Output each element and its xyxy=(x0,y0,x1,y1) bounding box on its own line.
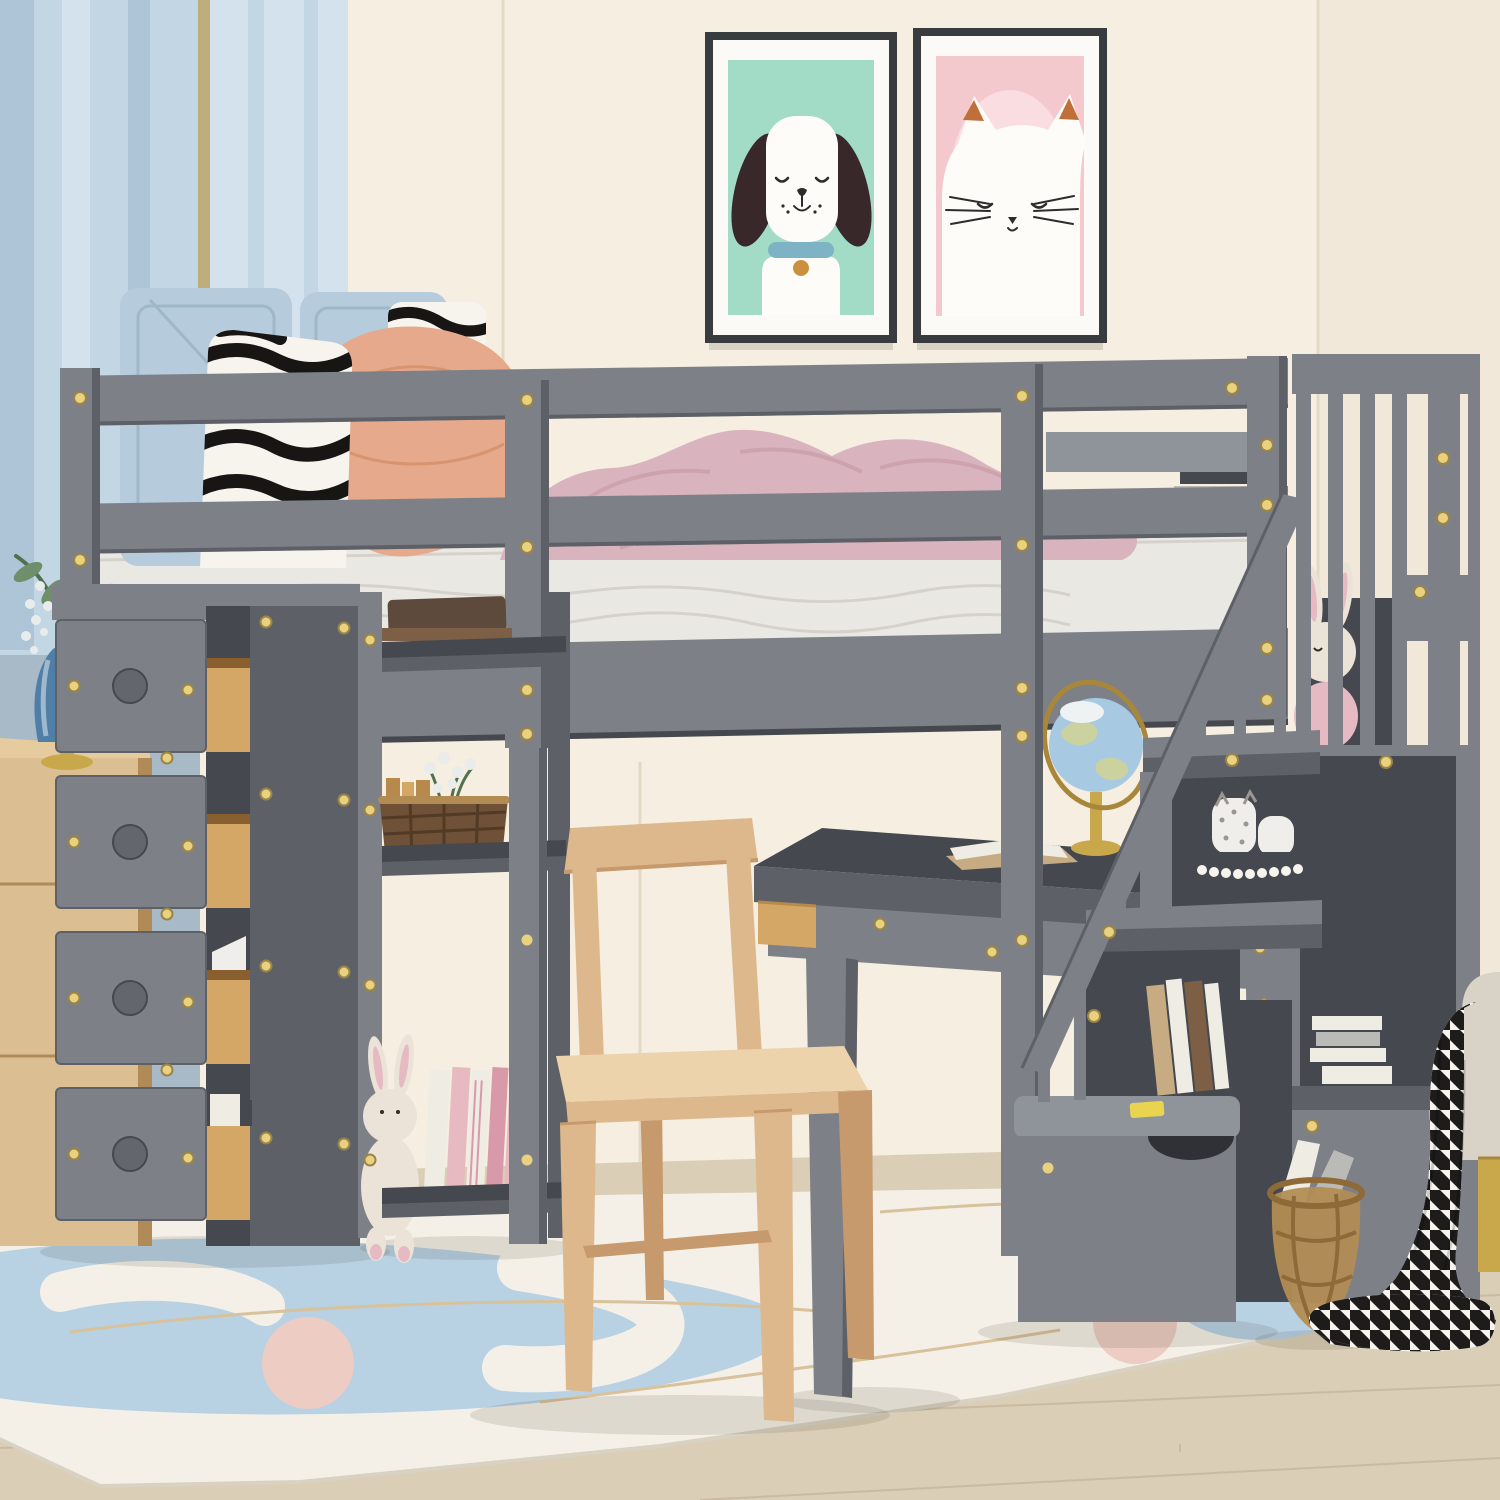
post-shade xyxy=(541,380,549,748)
drawer-box-wood xyxy=(206,658,250,752)
drawer-knob xyxy=(113,825,147,859)
bunny-eye xyxy=(380,1110,384,1114)
screw xyxy=(1226,754,1238,766)
book xyxy=(1180,472,1250,484)
screw xyxy=(522,935,533,946)
screw xyxy=(1261,694,1273,706)
bunny-head xyxy=(363,1089,417,1143)
yellow-tag xyxy=(1130,1101,1165,1118)
screw xyxy=(1016,539,1028,551)
drawer-knob xyxy=(113,1137,147,1171)
book xyxy=(1316,1032,1380,1046)
slat xyxy=(1328,394,1343,746)
screw xyxy=(365,635,376,646)
screw xyxy=(69,837,80,848)
stair-storage-drawer xyxy=(1014,1096,1240,1322)
basket-rim xyxy=(378,796,510,804)
screw xyxy=(1306,1120,1318,1132)
storage-step-cushion xyxy=(1014,1096,1240,1138)
drawer-contents-book xyxy=(240,1100,252,1126)
screw xyxy=(183,841,194,852)
slat xyxy=(1392,394,1407,746)
screw xyxy=(183,1153,194,1164)
poster-dog xyxy=(705,32,897,350)
drawer-box-interior xyxy=(206,658,250,668)
bunny-body xyxy=(361,1136,419,1236)
screw xyxy=(365,980,376,991)
slat-wide xyxy=(1428,394,1460,746)
screw xyxy=(875,919,886,930)
screw xyxy=(261,961,272,972)
globe-polar-cap xyxy=(1060,701,1104,723)
screw xyxy=(521,684,533,696)
shadow xyxy=(780,1387,960,1413)
stair-cubby-books xyxy=(1310,1016,1392,1084)
cat-figurine-spotted xyxy=(1212,798,1256,854)
screw xyxy=(1437,512,1449,524)
desk-drawer-open-wood xyxy=(758,902,816,948)
drawer-box-interior xyxy=(206,970,250,980)
screw xyxy=(1261,499,1273,511)
dog-collar-tag xyxy=(793,260,809,276)
screw xyxy=(987,947,998,958)
screw xyxy=(183,685,194,696)
bunny-foot-pad xyxy=(370,1244,382,1260)
ottoman-gold-leg xyxy=(1478,1158,1500,1272)
screw xyxy=(183,997,194,1008)
screw xyxy=(1103,926,1115,938)
screw xyxy=(162,1065,173,1076)
drawer-knob xyxy=(113,669,147,703)
screw xyxy=(69,993,80,1004)
drawer-box-wood xyxy=(206,1126,250,1220)
kids-room-loft-bed-photo xyxy=(0,0,1500,1500)
screw xyxy=(365,805,376,816)
screw xyxy=(162,909,173,920)
screw xyxy=(1261,642,1273,654)
drawer-box-wood xyxy=(206,814,250,908)
slat xyxy=(1296,394,1311,746)
drawer-contents-box xyxy=(210,1094,240,1126)
rug-pink-dot xyxy=(262,1317,354,1409)
screw xyxy=(69,681,80,692)
screw xyxy=(162,753,173,764)
bed-post-middle xyxy=(509,748,547,1244)
screw xyxy=(261,789,272,800)
screw xyxy=(261,1133,272,1144)
scene-canvas xyxy=(0,0,1500,1500)
screw xyxy=(261,617,272,628)
book xyxy=(1310,1048,1386,1062)
drawer-box-wood xyxy=(206,970,250,1064)
bunny-eye xyxy=(396,1110,400,1114)
globe-stem xyxy=(1090,792,1102,846)
cat-body xyxy=(942,94,1086,316)
screw xyxy=(339,623,350,634)
screw xyxy=(522,1155,533,1166)
drawer-box-interior xyxy=(206,814,250,824)
ottoman-body xyxy=(1462,972,1500,1160)
bed-back-rail xyxy=(1046,432,1268,472)
stair-panel-plate xyxy=(1400,575,1480,641)
screw xyxy=(74,392,86,404)
screw xyxy=(1016,934,1028,946)
drawer-knob xyxy=(113,981,147,1015)
bunny-foot-pad xyxy=(398,1246,410,1262)
poster-cat xyxy=(913,28,1107,350)
screw xyxy=(1414,586,1426,598)
screw xyxy=(339,795,350,806)
curtain-fold xyxy=(0,0,34,650)
screw xyxy=(1043,1163,1054,1174)
slat xyxy=(1468,394,1480,746)
screw xyxy=(1380,756,1392,768)
screw xyxy=(339,1139,350,1150)
screw xyxy=(365,1155,376,1166)
screw xyxy=(1016,682,1028,694)
poster-shadow xyxy=(709,343,893,350)
screw xyxy=(1226,382,1238,394)
dog-collar xyxy=(768,242,834,258)
post-shade xyxy=(539,748,547,1244)
book xyxy=(1312,1016,1382,1030)
shelf-black-book xyxy=(1196,852,1308,868)
screw xyxy=(339,967,350,978)
cat-figurine-small xyxy=(1258,816,1294,856)
slat xyxy=(1360,394,1375,746)
screw xyxy=(521,541,533,553)
stair-panel-top-cap xyxy=(1292,354,1480,394)
stair-lower-books xyxy=(1146,975,1230,1096)
screw xyxy=(521,394,533,406)
screw xyxy=(1437,452,1449,464)
screw xyxy=(521,728,533,740)
screw xyxy=(69,1149,80,1160)
screw xyxy=(1016,730,1028,742)
book xyxy=(1322,1066,1392,1084)
screw xyxy=(1016,390,1028,402)
screw xyxy=(1261,439,1273,451)
vase-foot xyxy=(41,754,93,770)
screw xyxy=(74,554,86,566)
screw xyxy=(1088,1010,1100,1022)
poster-shadow xyxy=(917,343,1103,350)
